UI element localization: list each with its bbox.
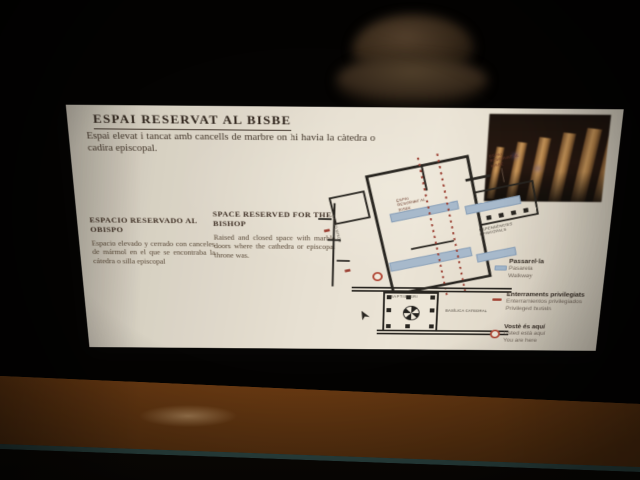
english-body: Raised and closed space with marble door… [213, 234, 335, 261]
map-column-square [429, 324, 434, 328]
episcopal-complex-plan: ESPAI RESERVAT AL BISBE ESPAI RESERVAT A… [364, 147, 514, 306]
legend-item-you-are-here: Vostè és aquí Usted está aquí You are he… [503, 323, 596, 345]
map-column-square [430, 308, 435, 312]
map-column-square [486, 215, 492, 220]
legend-item-burials: Enterraments privilegiats Enterramientos… [505, 291, 600, 314]
baptismal-font-icon [403, 305, 420, 320]
intro-text-catalan: Espai elevat i tancat amb cancells de ma… [86, 130, 375, 157]
burials-dash-icon [492, 298, 501, 301]
spanish-section: ESPACIO RESERVADO AL OBISPO Espacio elev… [89, 215, 216, 266]
map-column-square [405, 324, 410, 328]
you-are-here-marker [372, 272, 382, 281]
street-cross-wall [337, 260, 350, 262]
street-cross-wall [328, 239, 341, 241]
map-main-hall-walls [365, 155, 492, 296]
spanish-body: Espacio elevado y cerrado con canceles d… [91, 240, 216, 267]
map-long-wall [377, 330, 509, 332]
museum-scene: ESPAI RESERVAT AL BISBE Espai elevat i t… [0, 0, 640, 480]
map-column-square [498, 213, 504, 218]
panel-title: ESPAI RESERVAT AL BISBE [92, 112, 291, 131]
legend-label-en: Walkway [508, 273, 602, 281]
map-column-square [523, 208, 528, 213]
floor-plan-map: ESPAI RESERVAT AL BISBE ESPAI RESERVAT A… [329, 161, 525, 341]
spanish-heading: ESPACIO RESERVADO AL OBISPO [89, 215, 214, 235]
map-column-square [511, 210, 517, 215]
callout-leader-line [501, 168, 504, 182]
map-column-square [386, 308, 391, 312]
english-section: SPACE RESERVED FOR THE BISHOP Raised and… [212, 209, 335, 261]
walkway-swatch-icon [494, 265, 507, 270]
legend-item-walkway: Passarel·la Pasarela Walkway [508, 258, 604, 281]
stone-artifact-base [336, 56, 488, 108]
north-arrow-icon [358, 309, 370, 320]
baptistery-label: BAPTISTERI [390, 294, 417, 298]
basilica-label: BASÍLICA CATEDRAL [445, 309, 501, 314]
legend-label-en: Privileged burials [505, 306, 598, 314]
map-column-square [386, 324, 391, 328]
burial-tick [345, 269, 351, 272]
map-long-wall [377, 333, 509, 335]
info-panel: ESPAI RESERVAT AL BISBE Espai elevat i t… [66, 105, 624, 351]
english-heading: SPACE RESERVED FOR THE BISHOP [212, 209, 335, 229]
street-cross-wall [318, 218, 331, 220]
legend-label-en: You are here [503, 338, 595, 346]
map-column-square [430, 295, 435, 299]
map-legend: Passarel·la Pasarela Walkway Enterrament… [502, 258, 604, 355]
